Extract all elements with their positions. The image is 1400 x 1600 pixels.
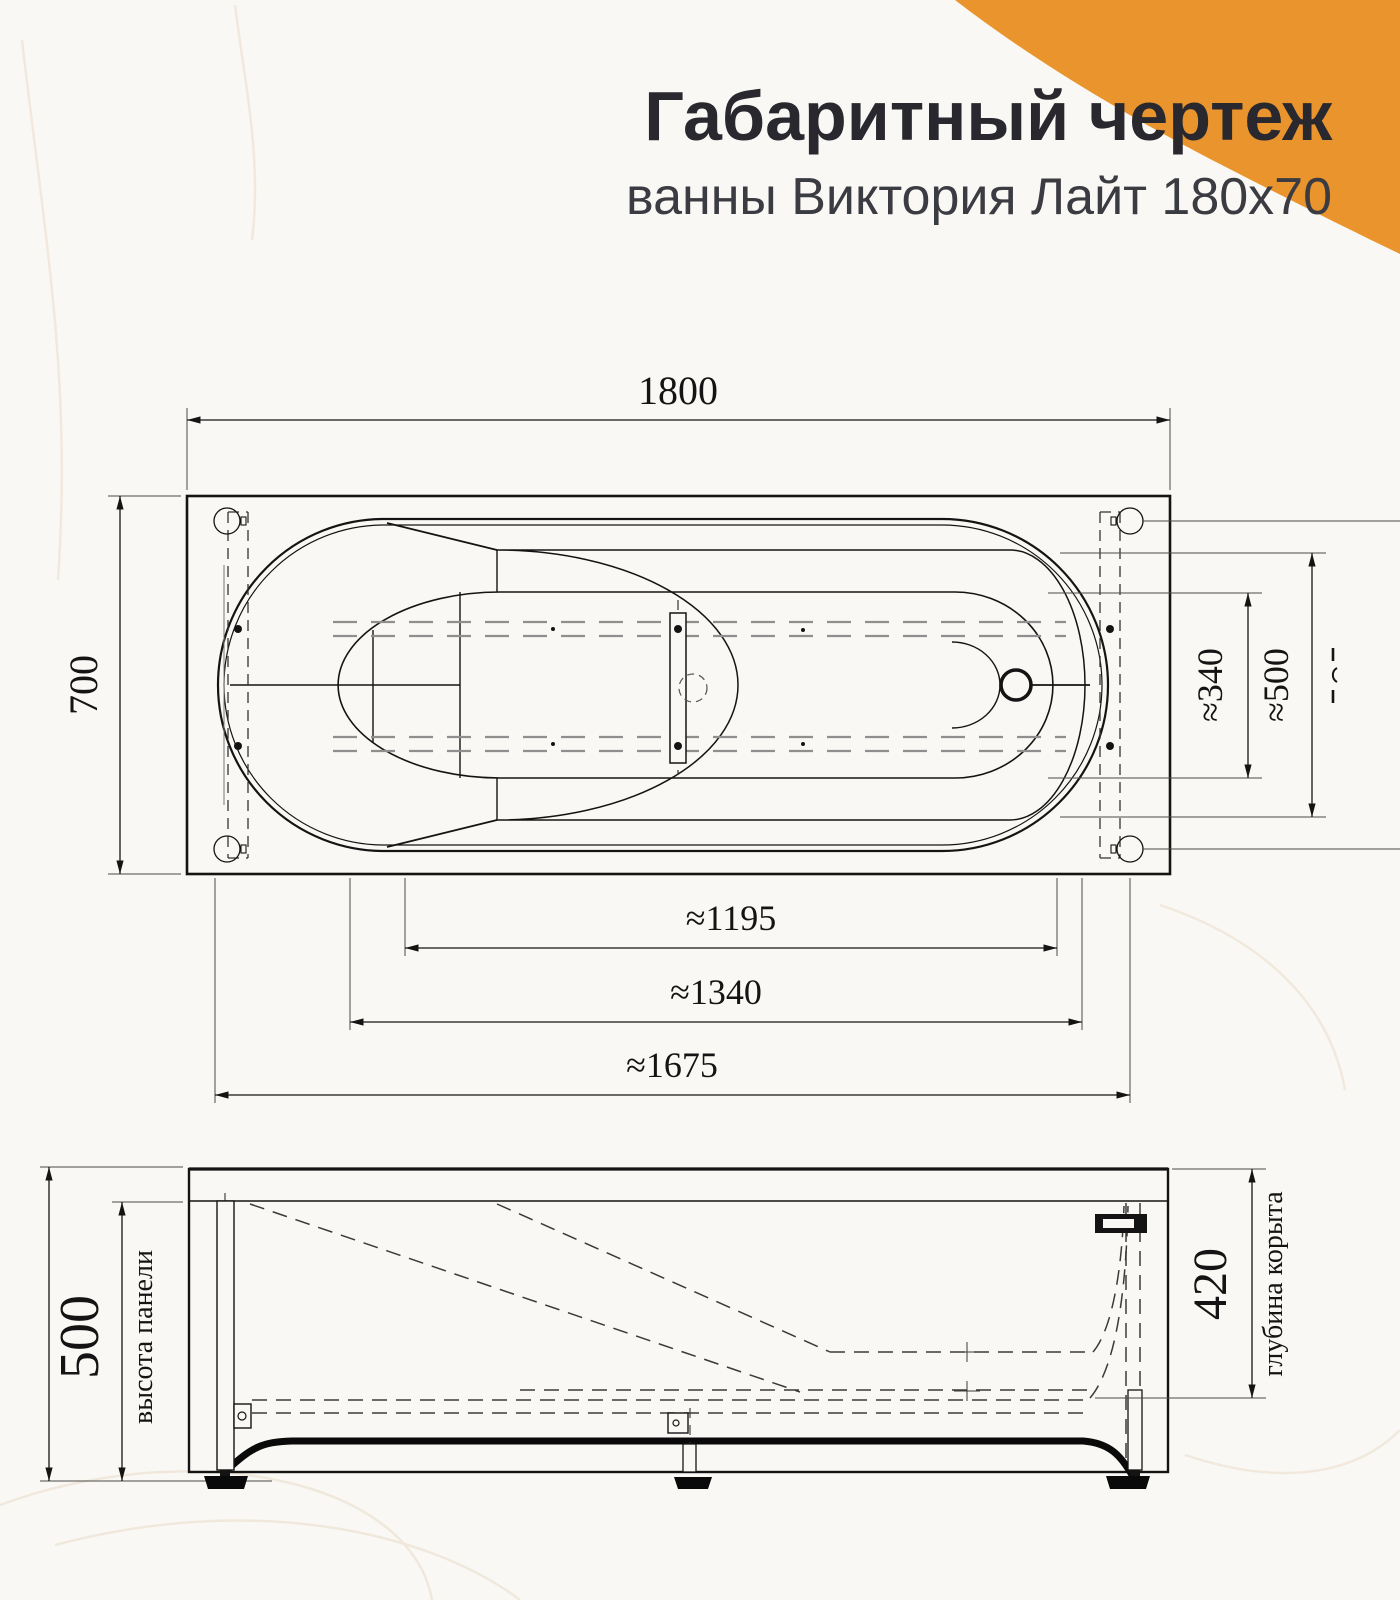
sump-arc: [952, 642, 1000, 728]
right-foot: [1106, 1476, 1150, 1489]
drain-circle: [1001, 670, 1031, 700]
dim-340-value: ≈340: [1190, 648, 1230, 722]
dim-1675-value: ≈1675: [626, 1045, 718, 1085]
background-swirls: [0, 5, 1400, 1600]
center-bracket: [670, 600, 707, 775]
dim-500-value: ≈500: [1256, 648, 1296, 722]
overflow-slot: [1095, 1214, 1147, 1233]
right-mounting-bracket: [1100, 512, 1120, 858]
clipped-dimension-text-fragment: [1333, 648, 1337, 703]
dim-bowl-depth-label: глубина корыта: [1258, 1191, 1289, 1377]
dim-width-700: 700: [61, 496, 181, 874]
dimensional-drawing-canvas: Габаритный чертеж ванны Виктория Лайт 18…: [0, 0, 1400, 1600]
side-view: 500 высота панели 420 глубина корыта: [40, 1167, 1289, 1489]
dim-1195: ≈1195: [405, 878, 1057, 956]
header: Габаритный чертеж ванны Виктория Лайт 18…: [626, 0, 1400, 254]
left-foot: [204, 1476, 248, 1489]
dim-panel-height-value: 500: [49, 1295, 111, 1379]
dim-panel-height: 500 высота панели: [40, 1167, 183, 1481]
dim-bowl-depth-value: 420: [1184, 1248, 1237, 1320]
center-leg: [668, 1408, 712, 1489]
center-foot: [674, 1477, 712, 1489]
basin-step-lines: [230, 550, 497, 820]
hidden-interior-lines: [250, 1203, 1140, 1470]
dim-width-value: 700: [61, 655, 106, 715]
channel-dashed-lines: [333, 622, 1066, 751]
dim-panel-height-label: высота панели: [128, 1250, 159, 1424]
dim-1340-value: ≈1340: [670, 972, 762, 1012]
dim-length-1800: 1800: [187, 368, 1170, 490]
apron-curve: [227, 1441, 1132, 1475]
page: Габаритный чертеж ванны Виктория Лайт 18…: [0, 0, 1400, 1600]
page-subtitle: ванны Виктория Лайт 180x70: [626, 168, 1332, 226]
top-view: 1800 700 ≈340 ≈500: [61, 368, 1400, 1103]
dim-length-value: 1800: [638, 368, 718, 413]
left-leg: [204, 1193, 251, 1489]
flange-inner-edge: [497, 550, 1085, 820]
page-title: Габаритный чертеж: [644, 77, 1333, 155]
dim-1195-value: ≈1195: [686, 898, 776, 938]
drain-center-marks: [954, 1342, 980, 1401]
